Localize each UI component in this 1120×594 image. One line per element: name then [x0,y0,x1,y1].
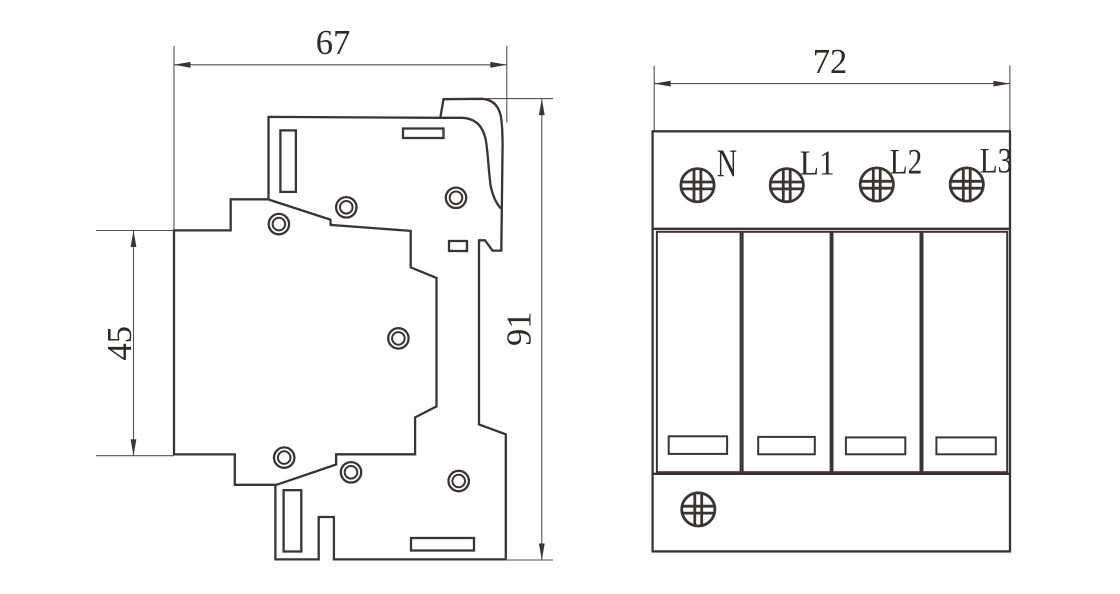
svg-text:N: N [717,143,737,185]
svg-text:67: 67 [316,24,351,62]
svg-text:L3: L3 [980,142,1012,182]
svg-text:91: 91 [501,311,539,346]
svg-text:72: 72 [813,43,848,81]
svg-text:L2: L2 [890,143,922,183]
svg-text:45: 45 [101,326,139,361]
svg-text:L1: L1 [800,145,835,183]
